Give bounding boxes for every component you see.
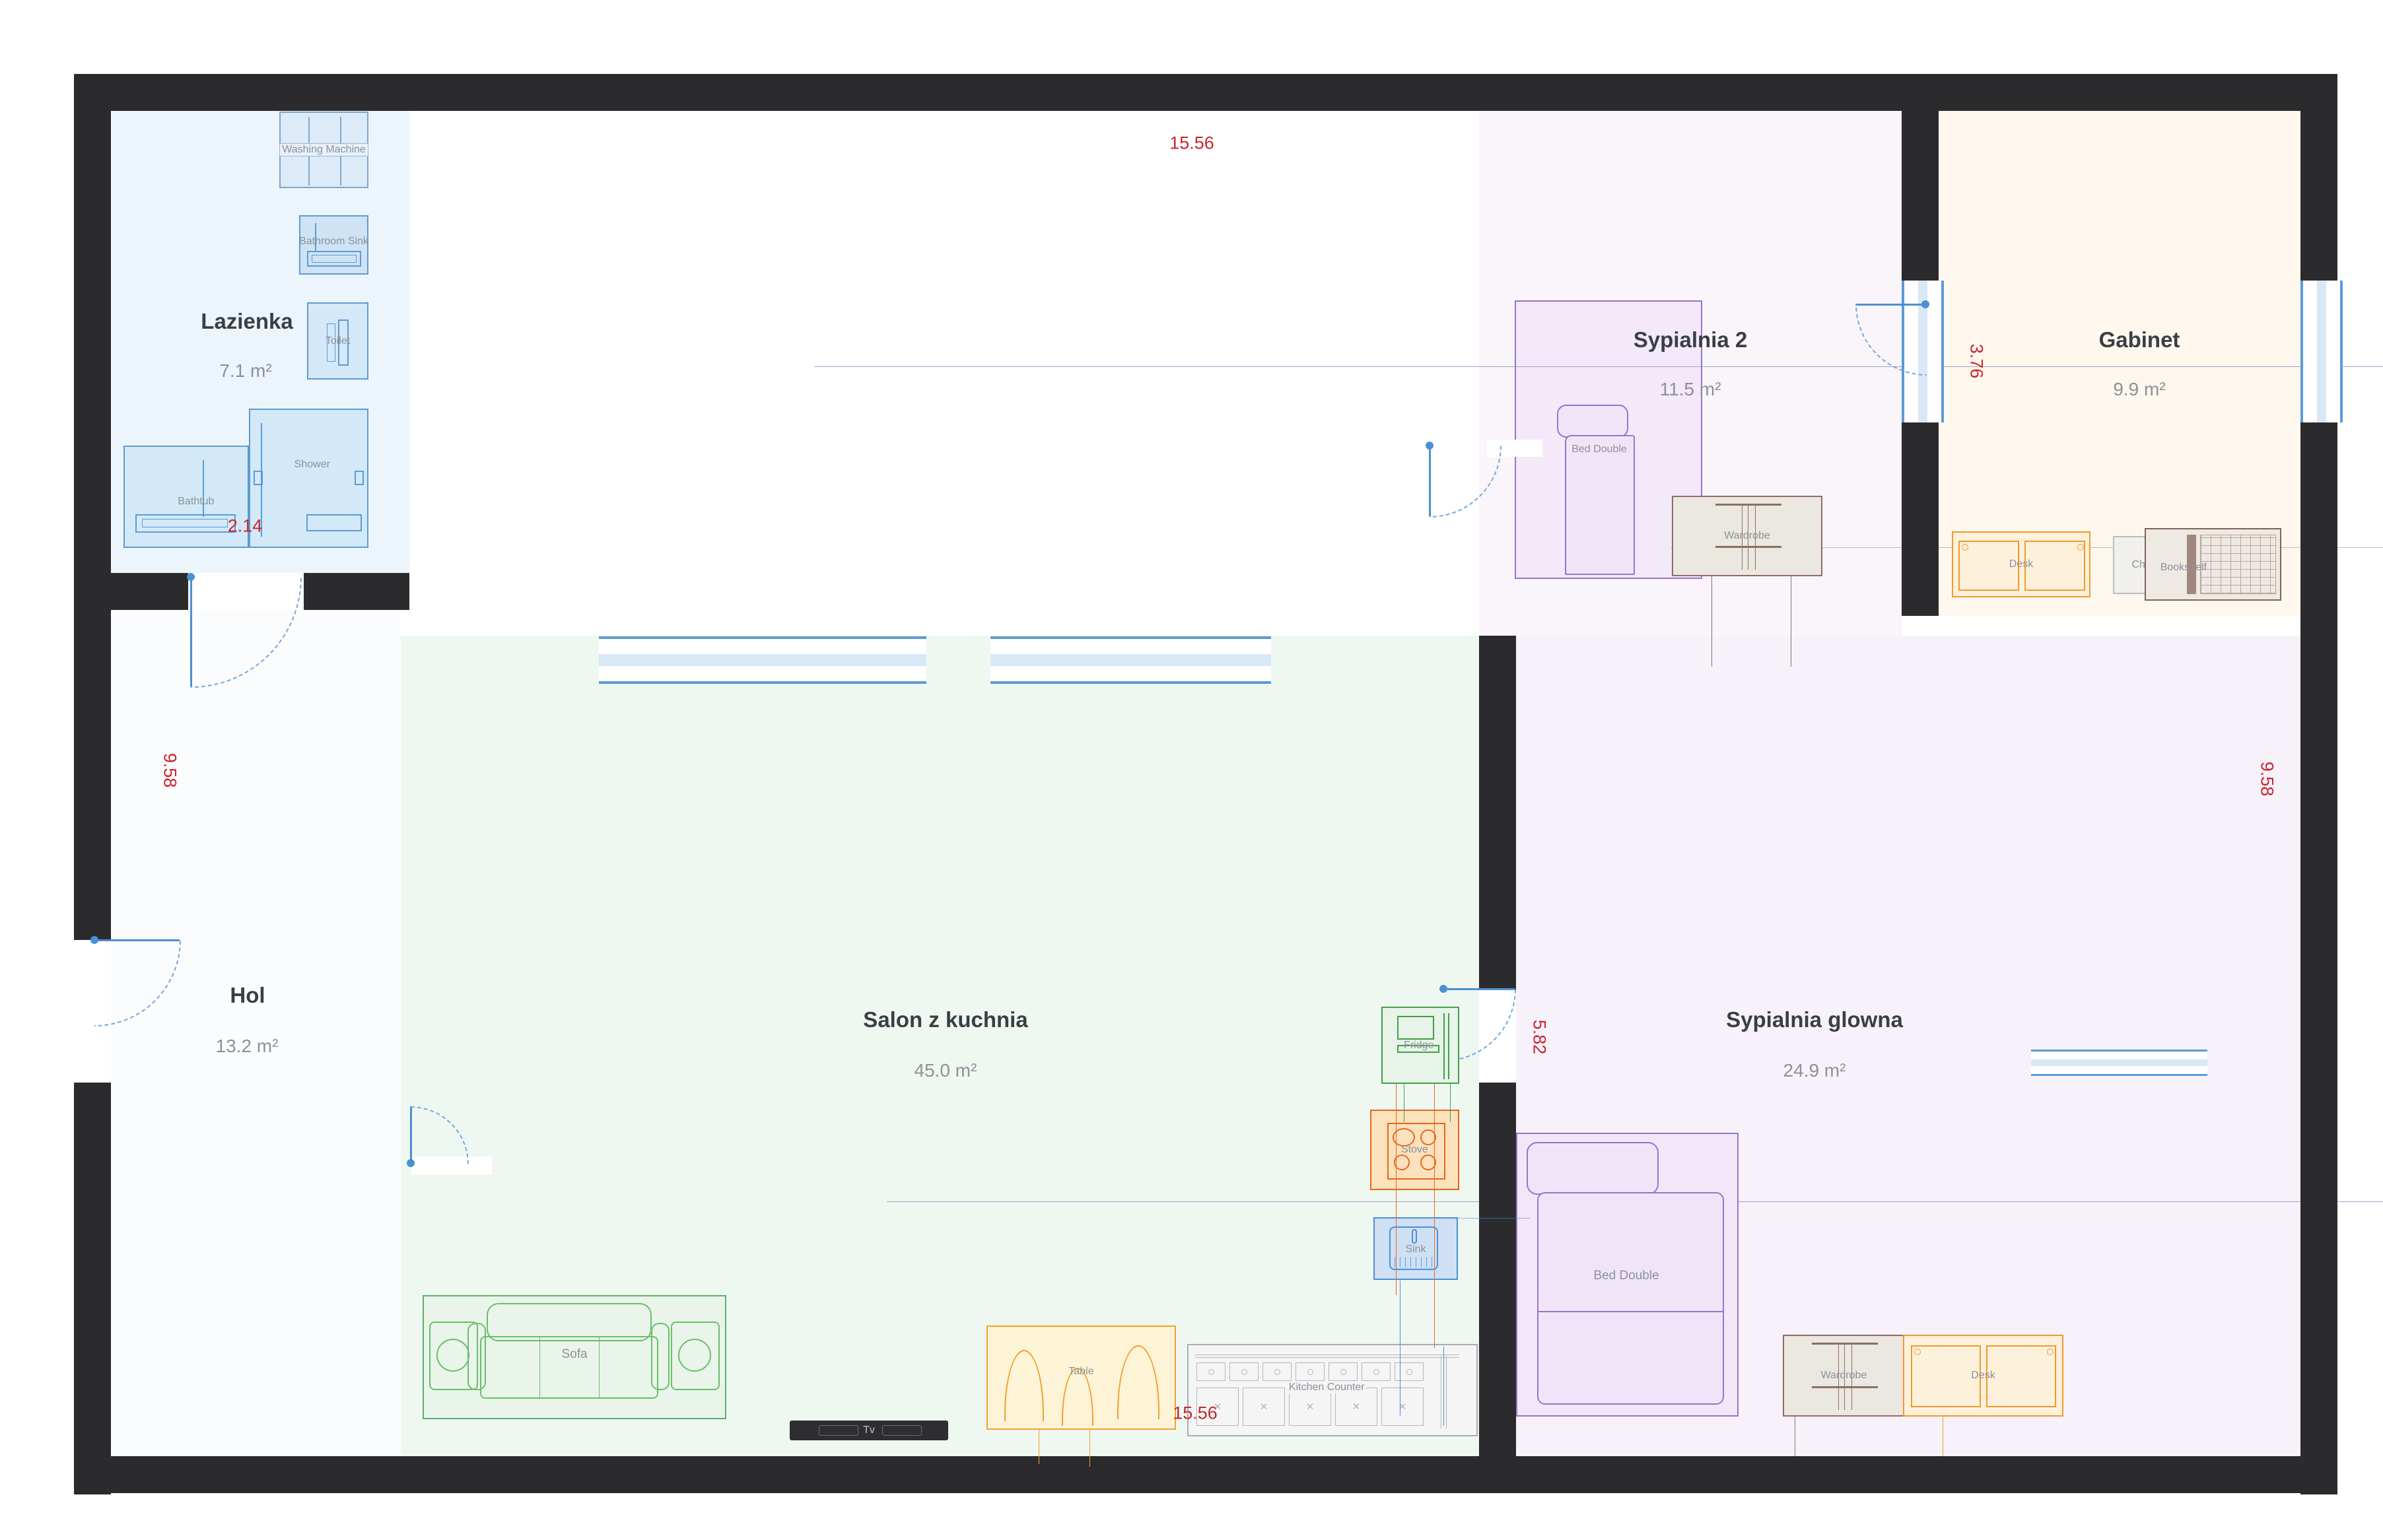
fridge-top-box [1397, 1016, 1434, 1040]
wardrobe-hanger [1748, 504, 1748, 570]
counter-drawer-row [1196, 1362, 1424, 1381]
desk-knob [1914, 1349, 1921, 1355]
counter-cabinet-row: ✕ ✕ ✕ ✕ ✕ [1196, 1388, 1424, 1426]
room-area-salon: 45.0 m² [915, 1060, 977, 1081]
window-glass [2317, 281, 2326, 422]
side-table-circle [436, 1339, 469, 1372]
sink-faucet [1412, 1229, 1417, 1244]
room-title-gabinet: Gabinet [2099, 327, 2180, 352]
bed-fold-line [1537, 1311, 1724, 1312]
table-leg-line [1089, 1430, 1090, 1467]
room-title-sypialnia2: Sypialnia 2 [1634, 327, 1747, 352]
sink-leader-line [1400, 1281, 1400, 1416]
bed-double-sypialnia2[interactable]: Bed Double [1557, 405, 1638, 576]
room-area-gabinet: 9.9 m² [2113, 379, 2165, 400]
toilet-bowl [338, 319, 349, 366]
wardrobe-label: Wardrobe [1724, 530, 1770, 542]
wardrobe-sypialnia2[interactable]: Wardrobe [1672, 496, 1822, 576]
room-title-master: Sypialnia glowna [1726, 1007, 1903, 1032]
shower-handle-right [355, 471, 364, 485]
desk-master[interactable]: Desk [1903, 1335, 2063, 1417]
side-table-right [671, 1322, 720, 1390]
window-salon-1[interactable] [599, 636, 926, 684]
desk-gabinet[interactable]: Desk [1952, 531, 2090, 597]
wall-top [74, 74, 2337, 111]
wall-bathroom-right [304, 573, 409, 610]
dimension-bath-width: 2.14 [228, 516, 263, 537]
washing-machine-drum-line [340, 117, 341, 185]
desk-knob [1962, 544, 1968, 551]
window-right-wall[interactable] [2300, 281, 2343, 422]
wardrobe-leader-line [1791, 576, 1791, 667]
wardrobe-master[interactable]: Wardrobe [1783, 1335, 1905, 1417]
wardrobe-hanger [1851, 1343, 1852, 1410]
wardrobe-hanger [1838, 1343, 1839, 1410]
shower[interactable]: Shower [249, 409, 368, 548]
dimension-gabinet-height: 3.76 [1966, 344, 1987, 379]
table-chair-arc [1004, 1350, 1044, 1421]
table-chair-arc [1062, 1368, 1093, 1426]
washing-machine-label: Washing Machine [279, 143, 368, 156]
room-title-salon: Salon z kuchnia [863, 1007, 1027, 1032]
dining-table[interactable]: Table [986, 1325, 1176, 1430]
washing-machine-drum-line [308, 117, 310, 185]
bookshelf-gabinet[interactable]: Bookshelf [2145, 528, 2281, 601]
wardrobe-rail-mid [1715, 546, 1781, 548]
wall-gabinet-left-lower [1902, 422, 1939, 616]
master-door-hinge [1439, 985, 1447, 993]
bathtub-edge [203, 460, 204, 517]
fridge-shelf [1397, 1045, 1439, 1053]
toilet[interactable]: Toilet [307, 302, 368, 380]
bookshelf-grid [2200, 535, 2276, 594]
room-hol-floor[interactable] [111, 610, 401, 1456]
dimension-height-left: 9.58 [160, 753, 180, 788]
bathroom-door-hinge [187, 573, 195, 581]
fridge-side-line [1443, 1013, 1445, 1079]
sink-leader-line [1443, 1347, 1444, 1426]
fridge[interactable]: Fridge [1381, 1007, 1459, 1084]
sink-rim-inner [312, 255, 357, 263]
desk-knob [2077, 544, 2084, 551]
salon-door-hinge [407, 1159, 415, 1167]
wall-salon-divider-lower [1479, 1083, 1516, 1456]
dimension-height-right: 9.58 [2257, 762, 2277, 797]
counter-top-edge [1195, 1355, 1459, 1358]
dimension-master-height: 5.82 [1529, 1020, 1550, 1055]
bookshelf-spine [2187, 535, 2196, 594]
side-table-left [429, 1322, 478, 1390]
desk-panel-right [2024, 541, 2085, 591]
sink-ribs [1395, 1257, 1433, 1267]
kitchen-counter[interactable]: ✕ ✕ ✕ ✕ ✕ Kitchen Counter [1187, 1344, 1478, 1436]
sofa-armrest-right [651, 1323, 670, 1390]
stove[interactable]: Stove [1370, 1110, 1459, 1190]
shower-label: Shower [294, 459, 330, 471]
window-glass [990, 654, 1271, 666]
wardrobe-hanger [1755, 504, 1756, 570]
bed-mattress [1565, 435, 1635, 575]
desk-panel-right [1986, 1345, 2056, 1407]
tv[interactable]: Tv [790, 1421, 948, 1440]
bathroom-sink[interactable]: Bathroom Sink [299, 215, 368, 275]
sofa-seat-split [539, 1337, 540, 1397]
shower-handle-left [254, 471, 263, 485]
wall-left-lower [74, 1083, 111, 1494]
table-chair-arc [1117, 1345, 1159, 1419]
window-master[interactable] [2031, 1050, 2207, 1076]
bathtub-rim-inner [142, 519, 228, 527]
wall-right-upper [2300, 74, 2337, 281]
window-glass [599, 654, 926, 666]
wardrobe-hanger [1742, 504, 1743, 570]
dimension-width-top: 15.56 [1169, 133, 1214, 154]
table-leg-line [1039, 1430, 1039, 1464]
desk-panel-left [1911, 1345, 1981, 1407]
sofa-seat [480, 1336, 658, 1399]
stove-leader-line [1396, 1084, 1397, 1295]
wall-left-upper [74, 74, 111, 940]
wardrobe-hanger [1844, 1343, 1845, 1410]
bathtub-label: Bathtub [178, 496, 214, 508]
toilet-tank [327, 323, 335, 362]
room-area-sypialnia2: 11.5 m² [1660, 379, 1721, 400]
room-title-hol: Hol [230, 983, 265, 1008]
kitchen-sink[interactable]: Sink [1373, 1217, 1458, 1280]
side-table-circle [678, 1339, 711, 1372]
fridge-leg-line [1404, 1084, 1404, 1122]
washing-machine[interactable]: Washing Machine [279, 112, 368, 188]
sypialnia2-door-hinge [1426, 442, 1433, 450]
counter-end-divider [1446, 1356, 1447, 1428]
wardrobe-leader-line [1711, 576, 1712, 667]
entry-door-hinge [90, 936, 98, 944]
room-area-master: 24.9 m² [1783, 1060, 1846, 1081]
wall-right-lower [2300, 422, 2337, 1494]
bed-pillow [1527, 1142, 1659, 1195]
tv-label: Tv [863, 1424, 875, 1436]
stove-leader-line [1434, 1084, 1435, 1348]
desk-knob [2047, 1349, 2054, 1355]
shower-rim [306, 514, 362, 531]
sink-leader-line-h [1458, 1218, 1531, 1219]
bathroom-sink-label: Bathroom Sink [299, 236, 368, 248]
sink-pipe [315, 223, 316, 252]
bed-double-master[interactable]: Bed Double [1516, 1133, 1739, 1417]
fridge-side-line [1448, 1013, 1449, 1079]
sofa-seat-split [599, 1337, 600, 1397]
dimension-width-bottom: 15.56 [1173, 1403, 1218, 1424]
room-area-hol: 13.2 m² [216, 1036, 279, 1057]
counter-end-divider [1441, 1356, 1441, 1428]
wall-gabinet-left-upper [1902, 111, 1939, 281]
bed-mattress [1537, 1192, 1724, 1405]
wardrobe-rail-top [1715, 504, 1781, 506]
floorplan-canvas[interactable]: Washing Machine Bathroom Sink Toilet Bat… [0, 0, 2383, 1540]
wardrobe-leader-line [1795, 1417, 1795, 1456]
gabinet-door-hinge [1921, 300, 1929, 308]
room-area-lazienka: 7.1 m² [219, 360, 271, 382]
wall-salon-divider-upper [1479, 636, 1516, 990]
wall-bathroom-left [74, 573, 188, 610]
wardrobe-rail-mid [1812, 1386, 1878, 1388]
room-title-lazienka: Lazienka [201, 309, 293, 334]
tv-speaker [882, 1425, 922, 1436]
dimension-line-upper [814, 366, 2383, 367]
wardrobe-rail-top [1812, 1343, 1878, 1345]
sofa[interactable]: Sofa [423, 1295, 726, 1419]
desk-leader-line [1943, 1417, 1943, 1456]
bed-pillow [1557, 405, 1628, 438]
window-glass [2031, 1059, 2207, 1066]
wall-bottom [74, 1456, 2337, 1493]
fridge-leg-line [1450, 1084, 1451, 1122]
window-salon-2[interactable] [990, 636, 1271, 684]
tv-speaker [819, 1425, 858, 1436]
